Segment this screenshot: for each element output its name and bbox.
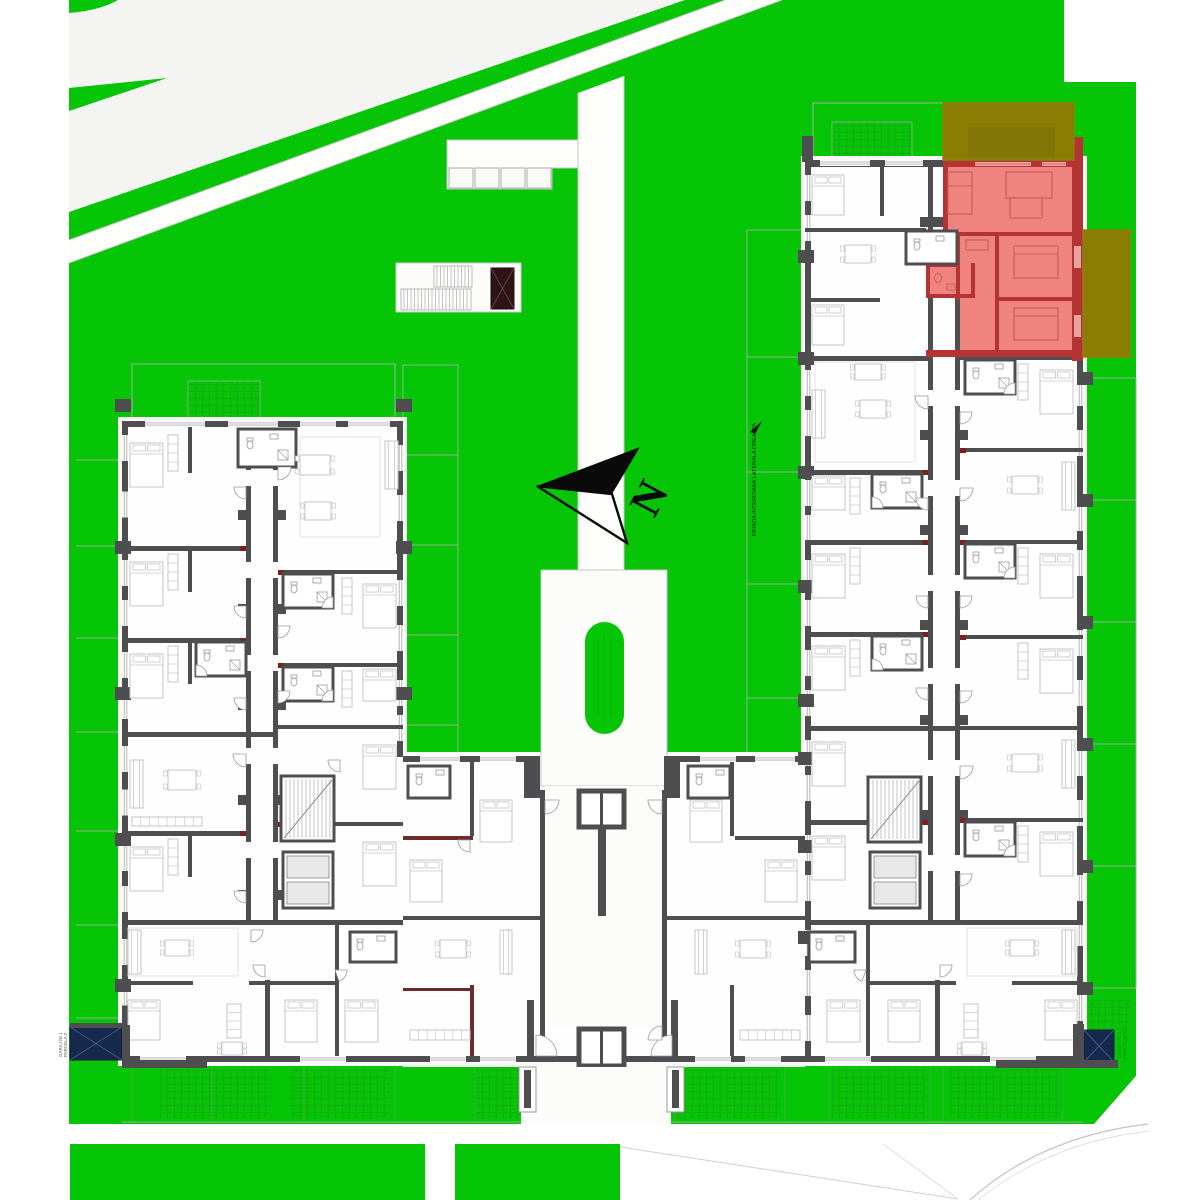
svg-text:FATADA INTERIOARA LATERALA DRE: FATADA INTERIOARA LATERALA DREAPTA [752,423,758,536]
svg-text:PARCELA 31: PARCELA 31 [1123,1029,1129,1059]
svg-text:PARCELA 2: PARCELA 2 [63,1032,68,1057]
